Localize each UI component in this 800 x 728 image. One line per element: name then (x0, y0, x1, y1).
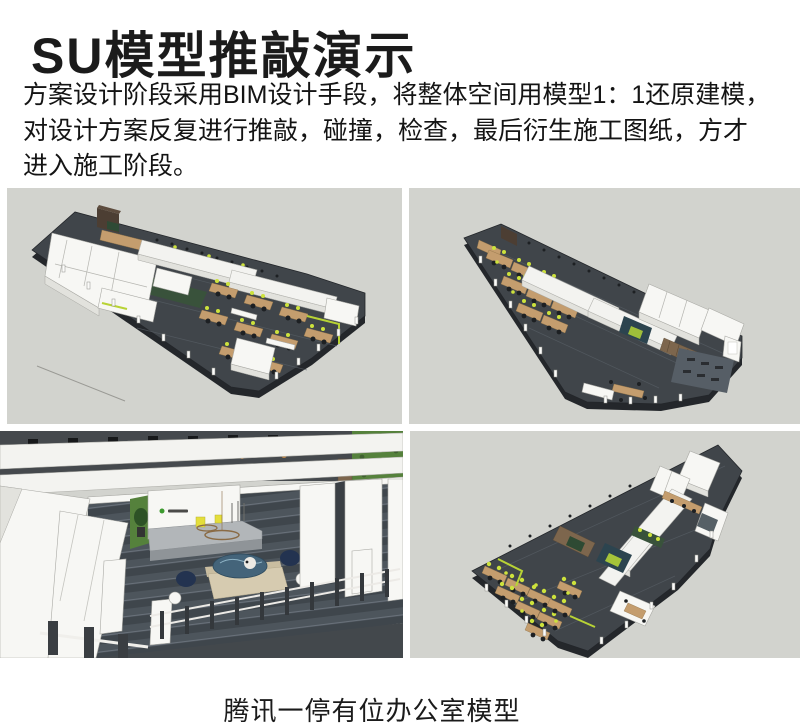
intro-line-1: 方案设计阶段采用BIM设计手段，将整体空间用模型1：1还原建模， (23, 78, 800, 114)
intro-line-3: 进入施工阶段。 (23, 149, 800, 185)
su-model-illustration-2 (409, 188, 800, 424)
su-model-illustration-1 (7, 188, 402, 424)
model-image-top-right (409, 188, 800, 424)
su-model-illustration-3 (0, 431, 403, 658)
model-image-top-left (7, 188, 402, 424)
model-image-bottom-left (0, 431, 403, 658)
intro-line-2: 对设计方案反复进行推敲，碰撞，检查，最后衍生施工图纸，方才 (23, 114, 800, 150)
page-title: SU模型推敲演示 (31, 26, 416, 86)
su-model-illustration-4 (410, 431, 800, 658)
image-caption: 腾讯一停有位办公室模型 (0, 691, 744, 728)
intro-paragraph: 方案设计阶段采用BIM设计手段，将整体空间用模型1：1还原建模， 对设计方案反复… (23, 78, 800, 185)
model-image-bottom-right (410, 431, 800, 658)
